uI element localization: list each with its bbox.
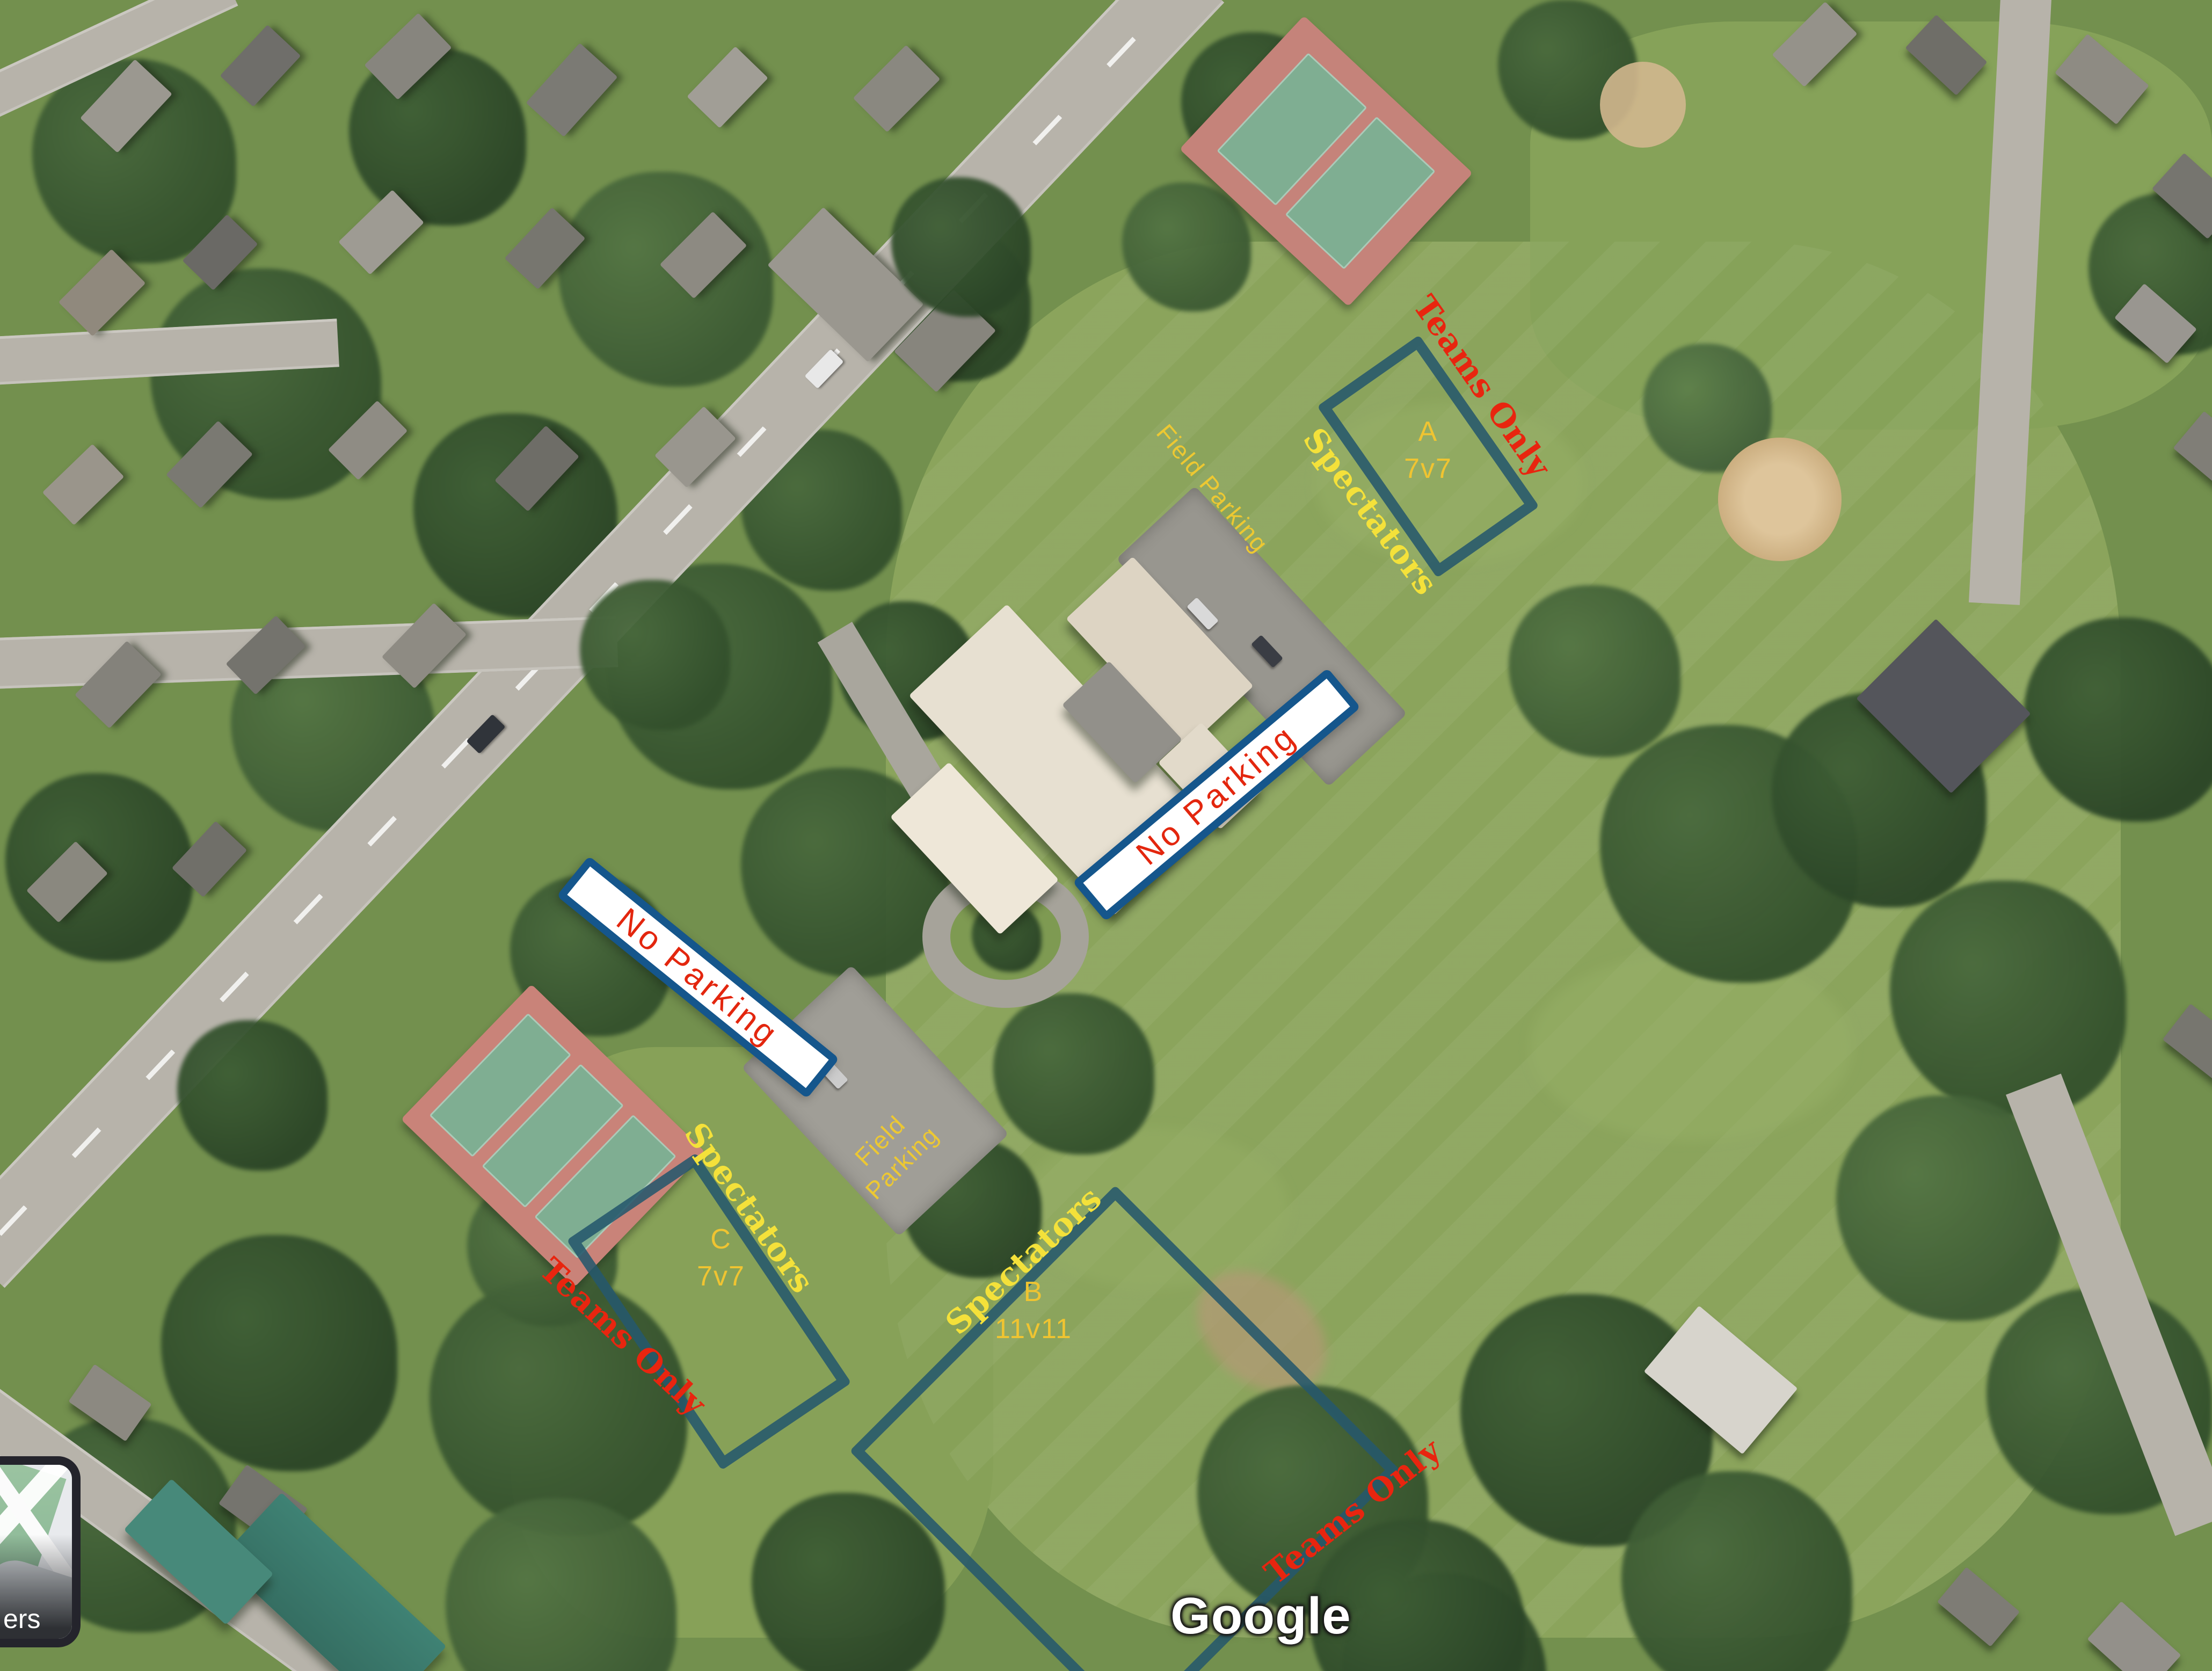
field-a-label: A 7v7 [1348,413,1509,487]
google-maps-satellite-view[interactable]: A 7v7 B 11v11 C 7v7 Teams Only Spectator… [0,0,2212,1671]
trees [161,1235,397,1471]
house [2163,1004,2212,1082]
layers-control[interactable]: ers [0,1456,81,1647]
trees [177,1020,328,1171]
trees [580,580,730,730]
house [2087,1601,2181,1671]
house [687,46,768,128]
field-a-format: 7v7 [1348,451,1509,488]
house [853,45,941,133]
house [42,444,125,525]
grass-patch [1530,953,1852,1141]
trees [558,172,773,387]
house [526,43,618,137]
baseball-diamond [1718,438,1842,561]
small-ballfield [1600,62,1686,148]
layers-control-label: ers [3,1603,40,1634]
house [2173,411,2212,497]
house [220,25,301,107]
house [1937,1567,2020,1647]
google-logo[interactable]: Google [1170,1587,1351,1646]
